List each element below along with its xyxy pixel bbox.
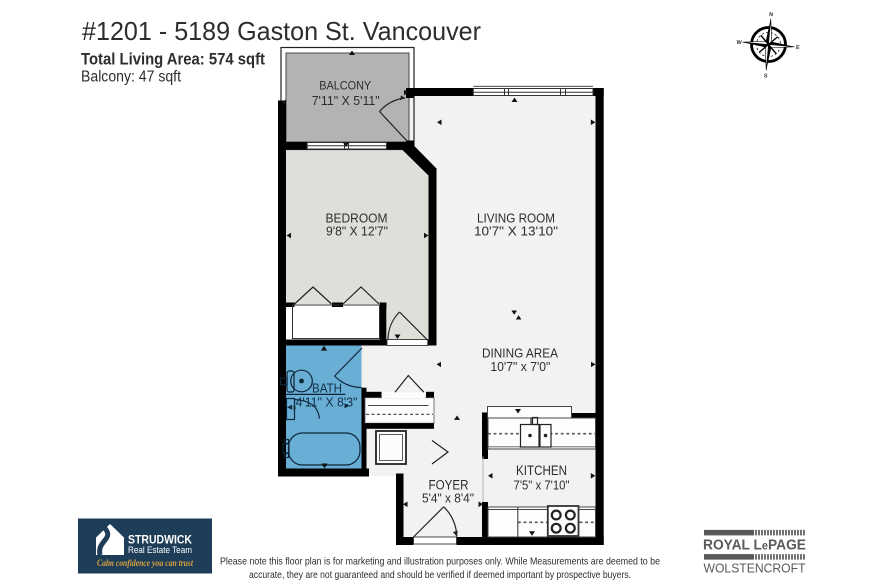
svg-text:N: N xyxy=(769,12,774,18)
svg-text:7'5" x 7'10": 7'5" x 7'10" xyxy=(514,478,570,493)
svg-text:KITCHEN: KITCHEN xyxy=(516,463,567,478)
svg-text:Calm confidence you can trust: Calm confidence you can trust xyxy=(97,558,193,569)
svg-text:BALCONY: BALCONY xyxy=(319,79,371,93)
svg-text:7'11" X 5'11": 7'11" X 5'11" xyxy=(312,94,380,108)
svg-text:WOLSTENCROFT: WOLSTENCROFT xyxy=(704,560,806,575)
svg-text:4'11" X 8'3": 4'11" X 8'3" xyxy=(296,396,358,410)
svg-text:5'4" x 8'4": 5'4" x 8'4" xyxy=(422,491,474,506)
svg-text:accurate, they are not guarant: accurate, they are not guaranteed and sh… xyxy=(249,569,631,581)
svg-text:10'7" X 13'10": 10'7" X 13'10" xyxy=(474,224,558,239)
svg-text:Balcony: 47 sqft: Balcony: 47 sqft xyxy=(81,69,182,86)
svg-text:Real Estate Team: Real Estate Team xyxy=(128,545,192,555)
svg-text:10'7" x 7'0": 10'7" x 7'0" xyxy=(490,359,550,374)
svg-text:ROYAL LePAGE: ROYAL LePAGE xyxy=(703,538,806,554)
svg-text:Total Living Area: 574 sqft: Total Living Area: 574 sqft xyxy=(81,50,265,69)
svg-text:9'8" X 12'7": 9'8" X 12'7" xyxy=(326,224,388,239)
svg-text:#1201 - 5189 Gaston St. Vancou: #1201 - 5189 Gaston St. Vancouver xyxy=(82,16,481,46)
svg-text:BATH: BATH xyxy=(312,382,342,396)
svg-text:Please note this floor plan is: Please note this floor plan is for marke… xyxy=(220,556,660,568)
